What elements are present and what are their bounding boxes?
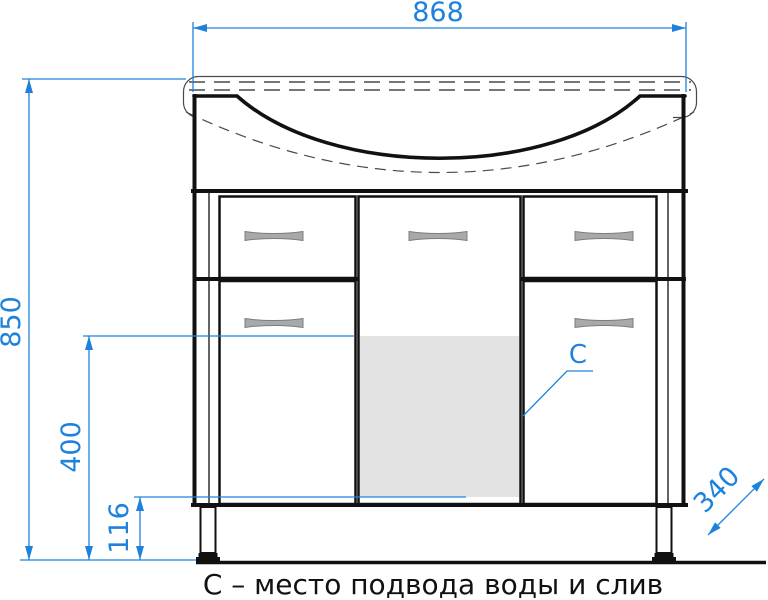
dim-value-868: 868 xyxy=(412,0,464,28)
marker-label: C xyxy=(569,340,587,370)
dim-depth: 340 xyxy=(688,461,764,535)
right-door-handle xyxy=(575,319,633,328)
sink-cover xyxy=(196,94,673,189)
left-door-handle xyxy=(245,319,303,328)
right-door-front xyxy=(524,281,657,504)
right-drawer-handle xyxy=(575,232,633,241)
technical-drawing-page: 868 850 400 116 340 C С – место подвода … xyxy=(0,0,768,600)
left-foot-stem xyxy=(199,553,218,557)
drawing-caption: С – место подвода воды и слив xyxy=(203,568,663,600)
dim-total-height: 850 xyxy=(0,79,196,560)
right-foot-stem xyxy=(655,553,674,557)
dim-value-340: 340 xyxy=(688,461,746,519)
left-leg xyxy=(201,507,216,553)
left-door-front xyxy=(220,281,356,504)
washbasin-top xyxy=(184,77,697,190)
right-leg xyxy=(657,507,672,553)
legs-and-ground xyxy=(196,507,766,563)
dim-value-850: 850 xyxy=(0,296,27,348)
dim-value-400: 400 xyxy=(56,421,87,473)
middle-door-handle xyxy=(409,232,467,241)
vanity-drawing-canvas: 868 850 400 116 340 C С – место подвода … xyxy=(0,0,768,600)
connection-marker: C xyxy=(523,340,593,416)
marker-leader-line xyxy=(523,371,593,416)
water-supply-zone xyxy=(360,336,519,497)
left-drawer-handle xyxy=(245,232,303,241)
dim-value-116: 116 xyxy=(104,502,135,554)
